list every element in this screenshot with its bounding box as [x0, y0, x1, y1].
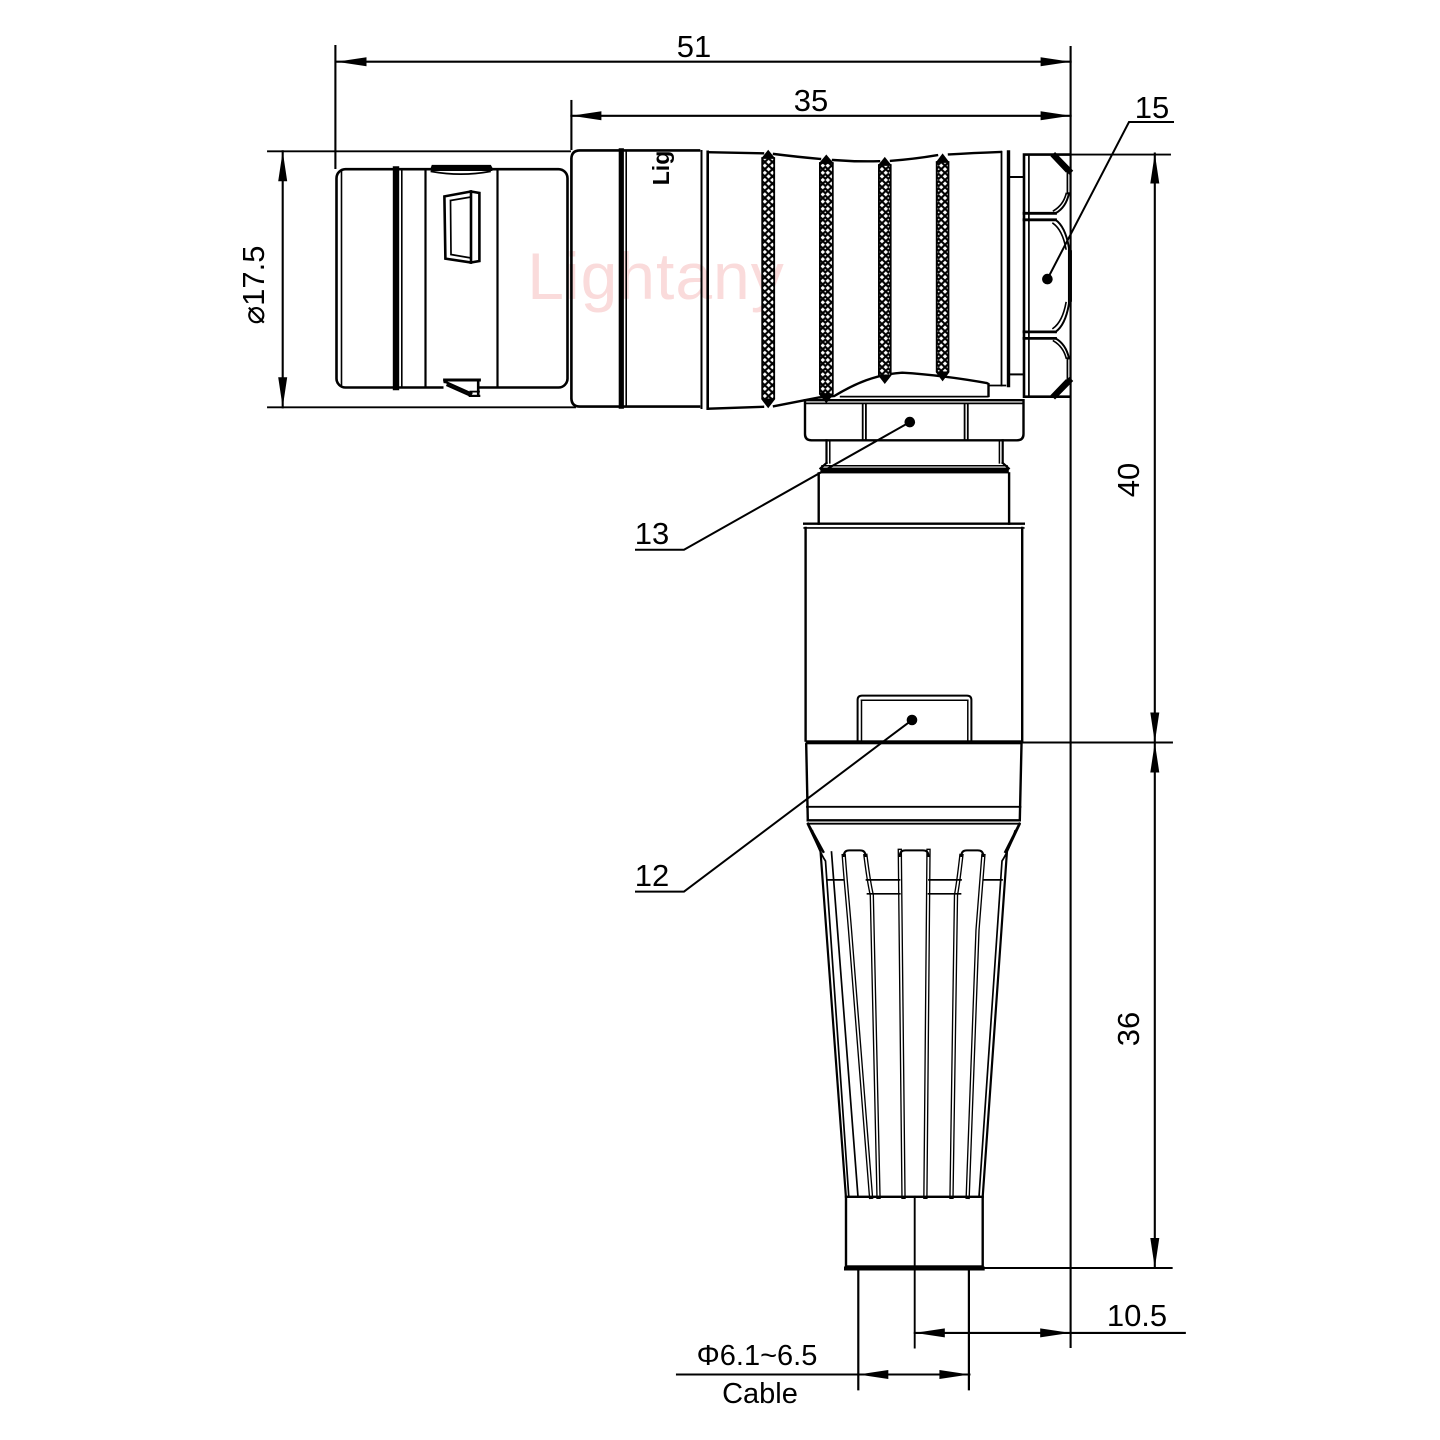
svg-text:10.5: 10.5: [1107, 1298, 1167, 1333]
svg-text:36: 36: [1111, 1012, 1146, 1046]
svg-text:51: 51: [677, 29, 711, 64]
svg-text:Cable: Cable: [722, 1378, 798, 1410]
svg-text:Φ6.1~6.5: Φ6.1~6.5: [697, 1340, 818, 1372]
svg-text:13: 13: [635, 516, 669, 551]
svg-text:Lig: Lig: [648, 151, 674, 186]
svg-text:40: 40: [1111, 463, 1146, 497]
svg-text:12: 12: [635, 858, 669, 893]
svg-text:Lightany: Lightany: [527, 239, 785, 313]
svg-text:35: 35: [794, 83, 828, 118]
svg-text:15: 15: [1135, 90, 1169, 125]
svg-text:⌀17.5: ⌀17.5: [236, 246, 271, 325]
